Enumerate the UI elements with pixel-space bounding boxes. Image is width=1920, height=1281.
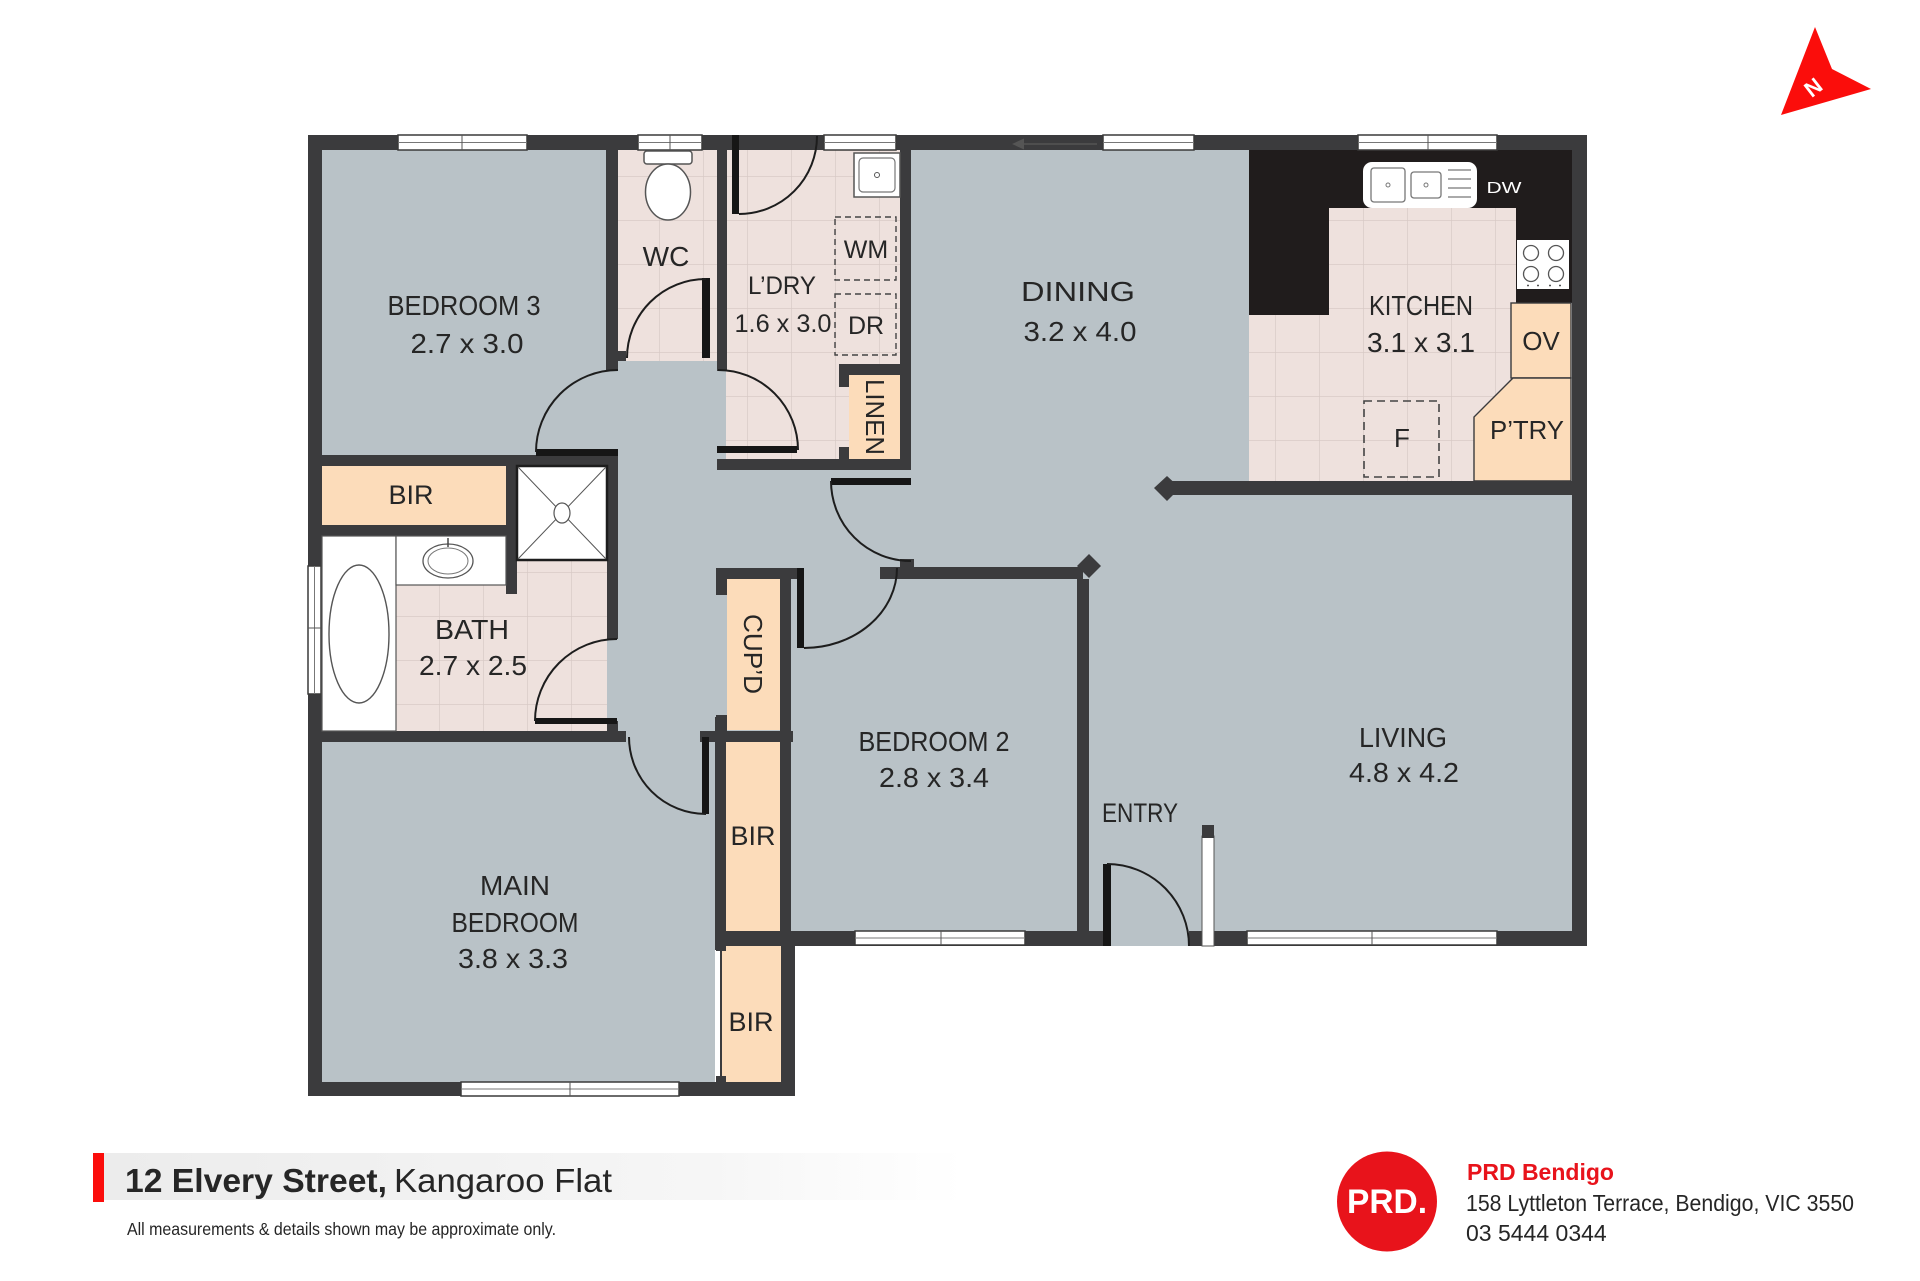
- svg-text:DR: DR: [848, 312, 884, 340]
- svg-text:PRD.: PRD.: [1347, 1183, 1427, 1221]
- svg-text:03 5444 0344: 03 5444 0344: [1466, 1220, 1607, 1246]
- svg-text:All measurements & details sho: All measurements & details shown may be …: [127, 1219, 556, 1239]
- svg-text:4.8 x 4.2: 4.8 x 4.2: [1349, 757, 1459, 788]
- svg-text:P’TRY: P’TRY: [1490, 415, 1564, 445]
- svg-text:BEDROOM 2: BEDROOM 2: [859, 726, 1010, 757]
- svg-text:3.2 x 4.0: 3.2 x 4.0: [1024, 316, 1137, 347]
- svg-text:LINEN: LINEN: [860, 379, 890, 455]
- svg-text:L’DRY: L’DRY: [748, 272, 816, 300]
- svg-text:BIR: BIR: [730, 821, 775, 851]
- svg-text:BIR: BIR: [388, 480, 433, 510]
- svg-text:OV: OV: [1522, 326, 1560, 356]
- svg-text:LIVING: LIVING: [1359, 722, 1447, 753]
- svg-text:MAIN: MAIN: [480, 870, 550, 901]
- svg-text:2.7 x 2.5: 2.7 x 2.5: [419, 650, 527, 681]
- svg-text:12 Elvery Street,Kangaroo Flat: 12 Elvery Street,Kangaroo Flat: [125, 1162, 612, 1199]
- svg-text:KITCHEN: KITCHEN: [1369, 290, 1473, 321]
- svg-text:DINING: DINING: [1021, 276, 1135, 307]
- svg-text:WM: WM: [844, 236, 888, 264]
- svg-text:ENTRY: ENTRY: [1102, 798, 1178, 828]
- svg-text:F: F: [1394, 423, 1410, 453]
- svg-text:BATH: BATH: [435, 614, 509, 645]
- svg-text:3.1 x 3.1: 3.1 x 3.1: [1367, 327, 1475, 358]
- svg-text:2.8 x 3.4: 2.8 x 3.4: [879, 762, 989, 793]
- svg-text:BIR: BIR: [728, 1007, 773, 1037]
- svg-text:CUP’D: CUP’D: [738, 614, 768, 694]
- svg-text:1.6 x 3.0: 1.6 x 3.0: [735, 310, 832, 338]
- svg-text:BEDROOM: BEDROOM: [452, 907, 579, 938]
- svg-text:WC: WC: [643, 241, 690, 272]
- svg-text:3.8 x 3.3: 3.8 x 3.3: [458, 943, 568, 974]
- svg-text:PRD Bendigo: PRD Bendigo: [1467, 1159, 1614, 1185]
- svg-text:2.7 x 3.0: 2.7 x 3.0: [411, 328, 524, 359]
- svg-text:BEDROOM 3: BEDROOM 3: [388, 290, 541, 321]
- svg-text:158 Lyttleton Terrace, Bendigo: 158 Lyttleton Terrace, Bendigo, VIC 3550: [1466, 1190, 1854, 1216]
- svg-text:DW: DW: [1487, 180, 1523, 197]
